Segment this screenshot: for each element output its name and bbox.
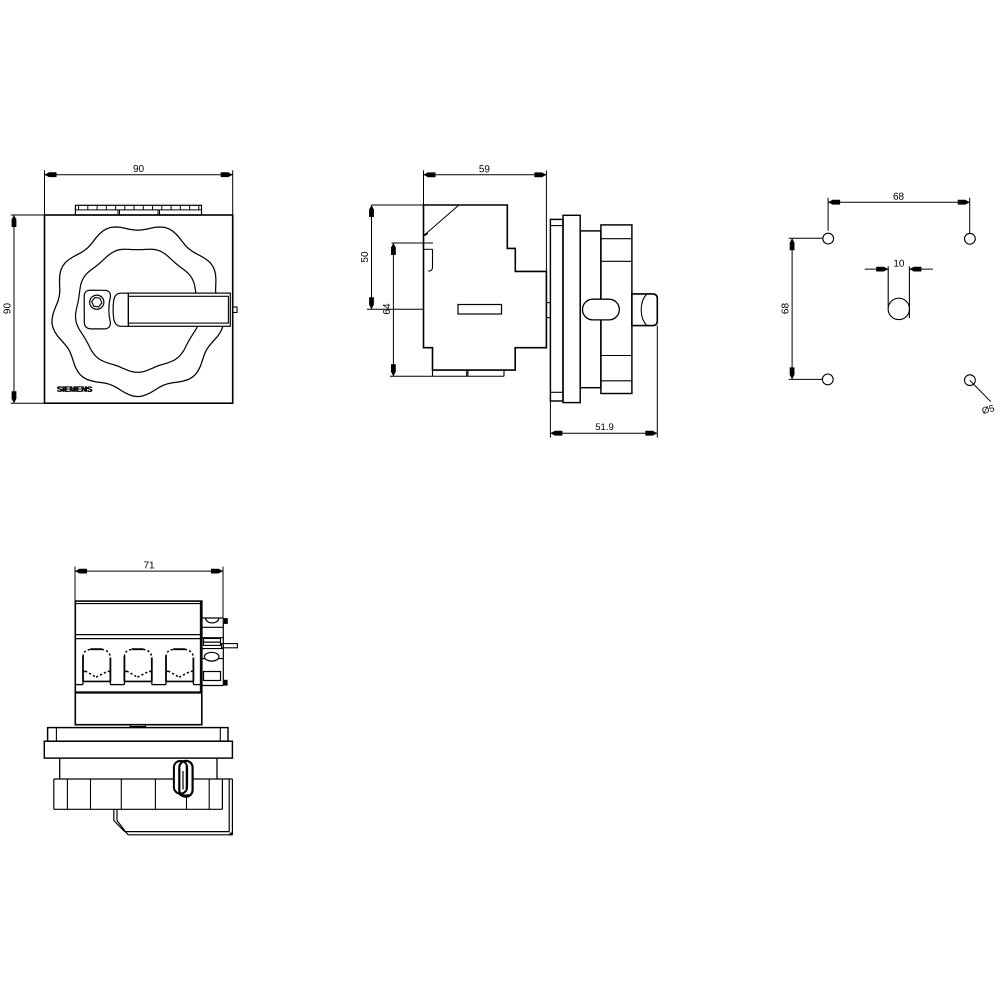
svg-text:59: 59: [479, 164, 491, 175]
svg-text:64: 64: [382, 303, 393, 315]
svg-text:51.9: 51.9: [595, 422, 614, 433]
svg-text:90: 90: [3, 303, 14, 315]
svg-text:68: 68: [781, 303, 792, 315]
svg-text:SIEMENS: SIEMENS: [58, 385, 93, 394]
svg-text:68: 68: [893, 192, 905, 203]
svg-text:90: 90: [133, 164, 145, 175]
svg-text:50: 50: [360, 251, 371, 263]
svg-text:71: 71: [143, 560, 155, 571]
svg-text:10: 10: [893, 259, 905, 270]
